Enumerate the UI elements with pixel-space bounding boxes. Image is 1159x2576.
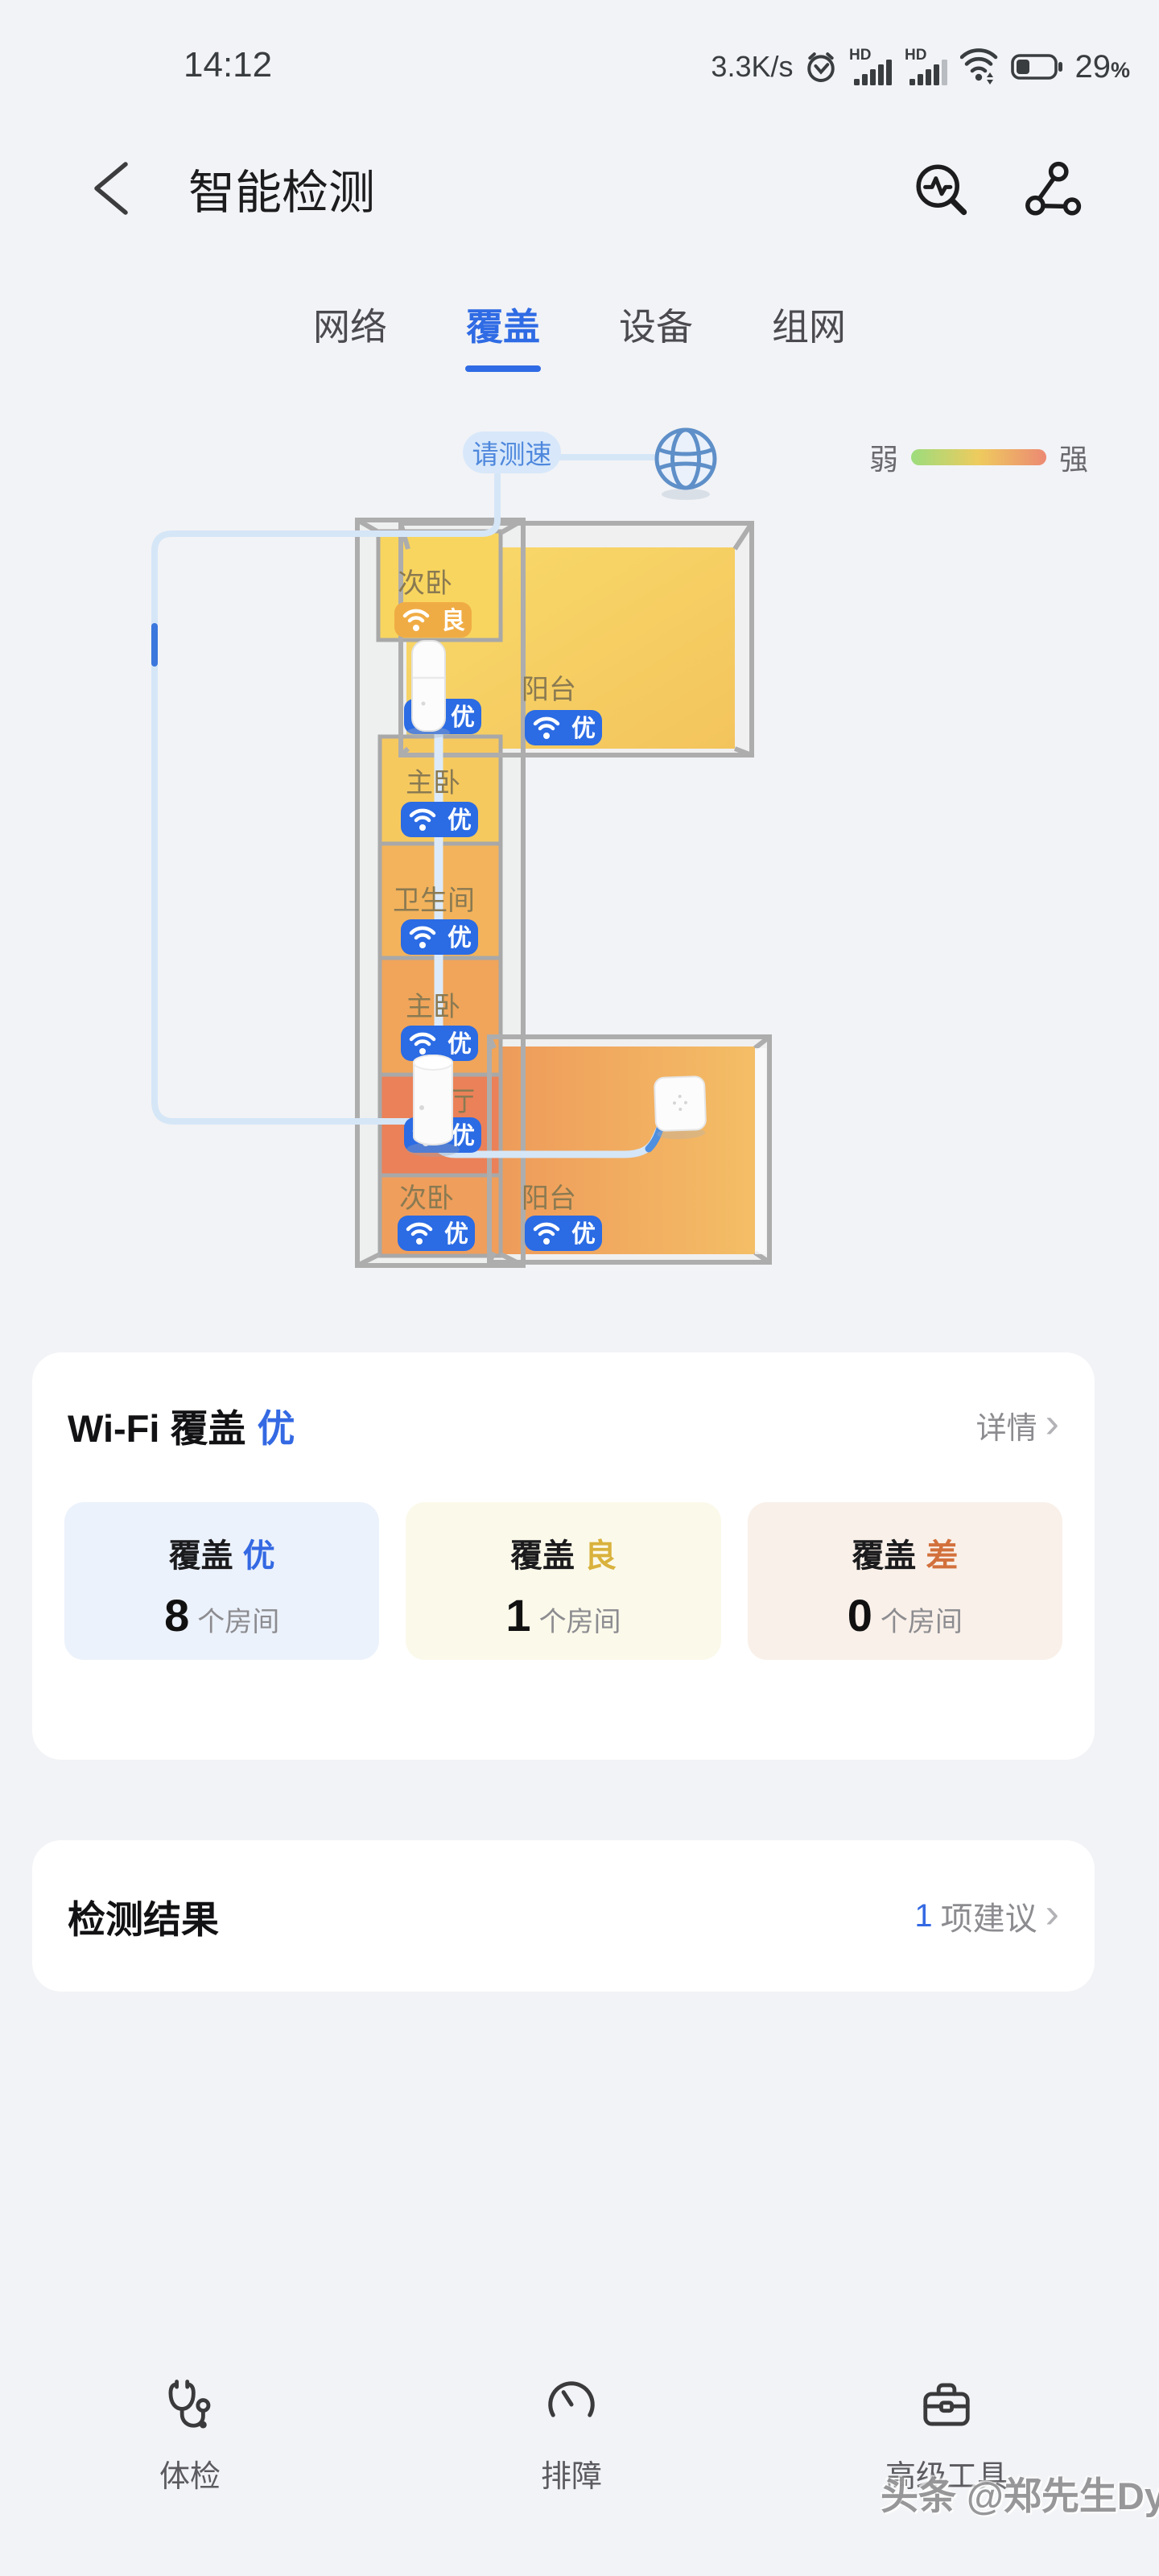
stat-label: 覆盖: [852, 1538, 916, 1574]
coverage-title: Wi-Fi 覆盖: [68, 1407, 245, 1450]
tab-label: 组网: [772, 306, 846, 348]
hd-signal-icon: HD: [849, 47, 894, 87]
result-card[interactable]: 检测结果 1 项建议 ›: [32, 1840, 1095, 1992]
stat-unit: 个房间: [539, 1607, 621, 1637]
suggestion-link[interactable]: 1 项建议 ›: [914, 1893, 1059, 1939]
chevron-right-icon: ›: [1046, 1402, 1059, 1444]
stat-label: 覆盖: [510, 1538, 575, 1574]
ont-device: [654, 1076, 707, 1140]
tab-bar: 网络 覆盖 设备 组网: [0, 298, 1159, 372]
tab-network[interactable]: 网络: [313, 298, 387, 372]
room-grade: 良: [441, 607, 465, 634]
wifi-icon-dot: [543, 733, 550, 739]
wifi-icon-dot: [419, 824, 426, 831]
nav-item-troubleshoot[interactable]: 排障: [483, 2376, 660, 2495]
wifi-icon-dot: [416, 1238, 423, 1245]
room-grade: 优: [448, 925, 472, 952]
room-label: 阳台: [522, 1183, 576, 1214]
room-label: 次卧: [398, 568, 452, 599]
globe-icon: [657, 430, 715, 500]
stat-count: 8: [164, 1590, 189, 1641]
page-title: 智能检测: [188, 155, 375, 222]
app-header: 智能检测: [0, 143, 1159, 233]
hd-label: HD: [905, 47, 926, 64]
hd-signal-icon-2: HD: [905, 47, 950, 87]
status-icons: 3.3K/s HD HD: [711, 42, 1130, 92]
stat-excellent: 覆盖优 8个房间: [64, 1502, 379, 1660]
wifi-icon: [960, 48, 1000, 85]
network-speed: 3.3K/s: [711, 50, 793, 84]
details-label: 详情: [976, 1403, 1037, 1447]
signal-legend: 弱 强: [869, 436, 1088, 478]
coverage-stats-row: 覆盖优 8个房间 覆盖良 1个房间 覆盖差 0个房间: [64, 1502, 1062, 1660]
room-grade: 优: [448, 807, 472, 834]
gauge-icon: [543, 2376, 600, 2433]
wifi-icon-dot: [413, 625, 419, 631]
watermark: 头条 @郑先生Dy: [881, 2465, 1159, 2520]
legend-gradient-bar: [911, 449, 1046, 465]
alarm-icon: [803, 48, 839, 85]
battery-percent: 29: [1074, 49, 1111, 85]
tab-label: 设备: [619, 306, 693, 348]
legend-strong-label: 强: [1059, 436, 1088, 478]
stat-poor: 覆盖差 0个房间: [748, 1502, 1062, 1660]
room-label: 次卧: [399, 1183, 454, 1214]
room-label: 阳台: [522, 675, 576, 705]
speedtest-tooltip[interactable]: 请测速: [463, 431, 561, 473]
toolbox-icon: [918, 2376, 975, 2433]
room-label: 主卧: [406, 768, 460, 799]
room-grade: 优: [571, 1221, 596, 1248]
diagnose-button[interactable]: [913, 161, 971, 223]
stat-good: 覆盖良 1个房间: [406, 1502, 720, 1660]
clock-time: 14:12: [184, 45, 272, 85]
nav-label: 体检: [101, 2451, 278, 2495]
battery-percent-sign: %: [1111, 58, 1130, 82]
topology-icon: [1024, 161, 1082, 219]
coverage-grade: 优: [257, 1407, 295, 1450]
room-grade: 优: [571, 716, 596, 742]
tab-label: 网络: [313, 306, 387, 348]
stat-unit: 个房间: [881, 1607, 963, 1637]
back-button[interactable]: [77, 158, 142, 219]
hd-label: HD: [849, 47, 871, 64]
nav-item-health-check[interactable]: 体检: [101, 2376, 278, 2495]
coverage-card: Wi-Fi 覆盖优 详情 › 覆盖优 8个房间 覆盖良 1个房间 覆盖差 0个房…: [32, 1352, 1095, 1760]
room-grade: 优: [451, 704, 475, 731]
stat-grade: 差: [926, 1538, 958, 1574]
tab-devices[interactable]: 设备: [619, 298, 693, 372]
suggestion-label: 项建议: [941, 1893, 1037, 1939]
topology-button[interactable]: [1024, 161, 1082, 223]
room-label: 主卧: [406, 992, 460, 1022]
stat-count: 1: [505, 1590, 530, 1641]
pulse-search-icon: [913, 161, 971, 219]
wifi-icon-dot: [543, 1238, 550, 1245]
back-arrow-icon: [77, 158, 142, 219]
tab-coverage[interactable]: 覆盖: [466, 298, 540, 372]
stethoscope-icon: [162, 2376, 218, 2433]
battery-icon: [1011, 52, 1064, 81]
wifi-icon-dot: [419, 942, 426, 948]
tab-mesh[interactable]: 组网: [772, 298, 846, 372]
stat-label: 覆盖: [169, 1538, 233, 1574]
details-link[interactable]: 详情 ›: [976, 1403, 1059, 1447]
nav-label: 排障: [483, 2451, 660, 2495]
wifi-icon-dot: [419, 1048, 426, 1055]
floorplan-canvas: 次卧良厅优阳台优主卧优卫生间优主卧优厅优次卧优阳台优: [0, 402, 1159, 1280]
active-tab-underline: [465, 365, 541, 372]
suggestion-count: 1: [914, 1898, 932, 1934]
tab-label: 覆盖: [466, 306, 540, 348]
stat-unit: 个房间: [197, 1607, 279, 1637]
chevron-right-icon: ›: [1046, 1893, 1059, 1934]
repeater-device: [406, 641, 450, 738]
stat-grade: 良: [584, 1538, 617, 1574]
room-grade: 优: [448, 1031, 472, 1058]
stat-count: 0: [848, 1590, 872, 1641]
room-grade: 优: [444, 1221, 468, 1248]
legend-weak-label: 弱: [869, 436, 898, 478]
stat-grade: 优: [243, 1538, 275, 1574]
result-title: 检测结果: [68, 1889, 219, 1944]
room-label: 卫生间: [393, 885, 475, 916]
status-bar: 14:12 3.3K/s HD HD: [0, 39, 1159, 95]
coverage-card-header: Wi-Fi 覆盖优 详情 ›: [68, 1397, 1059, 1453]
